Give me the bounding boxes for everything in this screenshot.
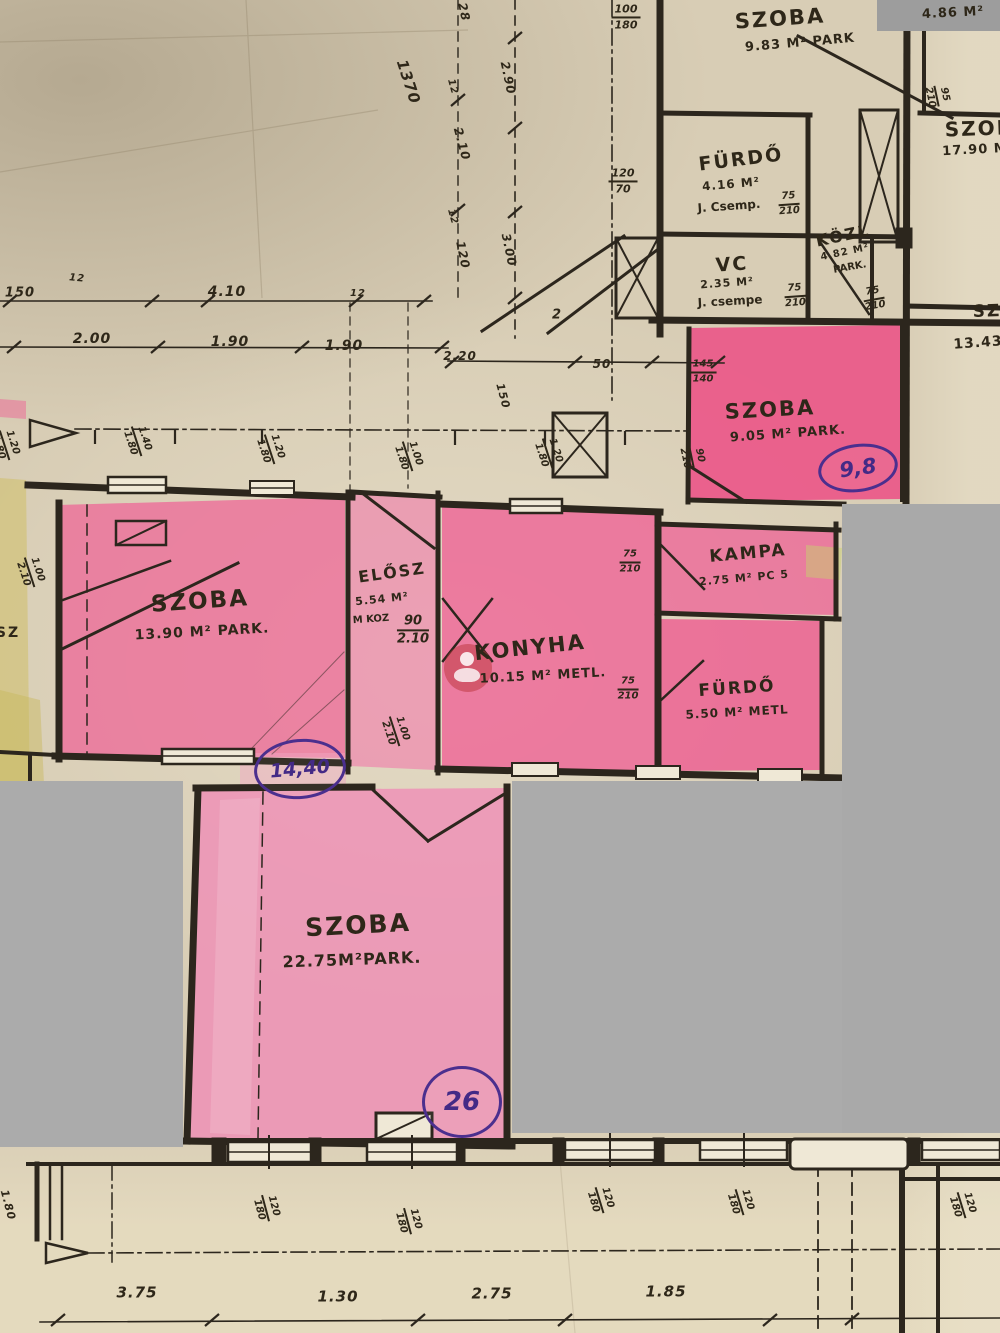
- dim-190-a: 1.90: [211, 335, 250, 349]
- room-szoba-2275-area: 22.75M²PARK.: [282, 950, 421, 971]
- door-75-210-vc-denominator: 210: [785, 296, 807, 309]
- room-vc-area: 2.35 M²: [700, 276, 754, 291]
- door-75-210-kampa-denominator: 210: [620, 563, 641, 575]
- room-vc-name: VC: [715, 254, 749, 275]
- room-szoba-2275-name: SZOBA: [305, 910, 412, 941]
- dim-130: 1.30: [317, 1290, 358, 1305]
- dim-200: 2.00: [73, 332, 112, 346]
- door-120-70: 12070: [609, 167, 638, 194]
- door-90-210-elosz-denominator: 2.10: [397, 631, 429, 646]
- door-90-210-elosz: 902.10: [397, 614, 429, 645]
- dim-410: 4.10: [208, 285, 247, 299]
- dim-12-c: 12: [69, 273, 86, 284]
- dim-145-140-numerator: 145: [690, 360, 717, 374]
- door-75-210-kampa: 75210: [620, 550, 641, 575]
- room-szoba-1790-area: 17.90 M: [942, 142, 1000, 158]
- room-sz-1343-name: SZ: [972, 303, 1000, 321]
- edge-label-sz: SZ: [0, 626, 20, 640]
- floor-plan-drawing: [0, 0, 1000, 1333]
- door-75-210-furdo550-numerator: 75: [618, 677, 639, 691]
- room-szoba-905-name: SZOBA: [724, 397, 815, 423]
- dim-375: 3.75: [116, 1286, 157, 1301]
- window-100-180-top: 100180: [612, 3, 641, 30]
- door-75-210-kozl: 75210: [862, 285, 887, 313]
- door-120-70-numerator: 120: [609, 167, 638, 182]
- room-sz-1343-area: 13.43: [953, 334, 1000, 351]
- dim-28: 28: [456, 2, 472, 23]
- door-75-210-furdo550-denominator: 210: [618, 690, 639, 702]
- door-75-210-furdo550: 75210: [618, 677, 639, 702]
- door-120-70-denominator: 70: [609, 182, 638, 195]
- dim-185: 1.85: [645, 1285, 686, 1300]
- door-75-210-vc: 75210: [784, 283, 807, 309]
- room-szoba-1790-name: SZOBA: [944, 116, 1000, 139]
- door-75-210-kampa-numerator: 75: [620, 550, 641, 564]
- door-90-210-elosz-numerator: 90: [397, 614, 429, 631]
- dim-220: 2.20: [443, 350, 477, 362]
- dim-145-140: 145140: [690, 360, 717, 385]
- floor-plan-photo: SZOBA9.83 M² PARK4.86 M²FÜRDŐ4.16 M²J. C…: [0, 0, 1000, 1333]
- dim-190-b: 1.90: [325, 339, 364, 353]
- ink-circle-26: 26: [422, 1066, 502, 1138]
- window-100-180-top-numerator: 100: [612, 3, 641, 18]
- room-486-area: 4.86 M²: [922, 5, 985, 21]
- dim-12-d: 12: [350, 289, 366, 299]
- window-100-180-top-denominator: 180: [612, 18, 641, 31]
- dim-145-140-denominator: 140: [690, 373, 717, 385]
- door-75-210-furdo416: 75210: [778, 191, 801, 217]
- dim-2: 2: [552, 309, 562, 322]
- dim-50: 50: [593, 358, 612, 370]
- door-75-210-furdo416-denominator: 210: [779, 204, 801, 217]
- dim-275: 2.75: [471, 1287, 512, 1302]
- dim-150: 150: [5, 287, 35, 300]
- room-vc-note: J. csempe: [697, 293, 762, 308]
